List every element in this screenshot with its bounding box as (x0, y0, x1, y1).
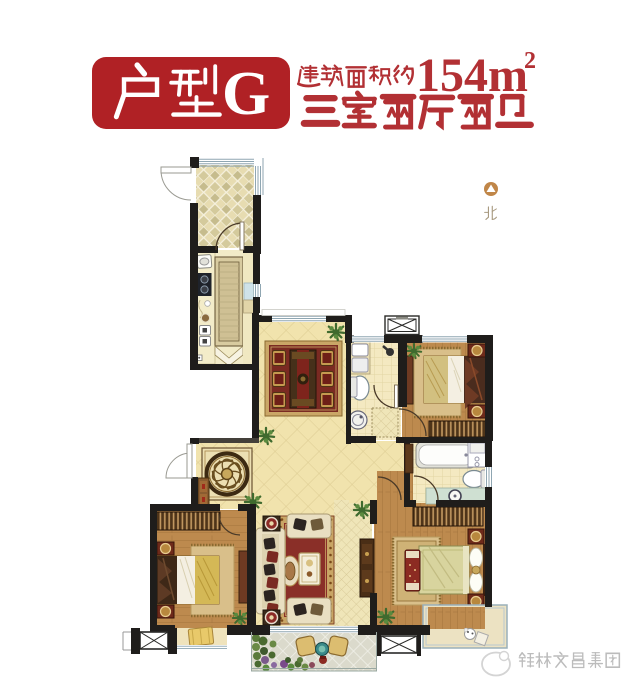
svg-text:G: G (222, 60, 270, 128)
svg-text:2: 2 (524, 48, 536, 74)
